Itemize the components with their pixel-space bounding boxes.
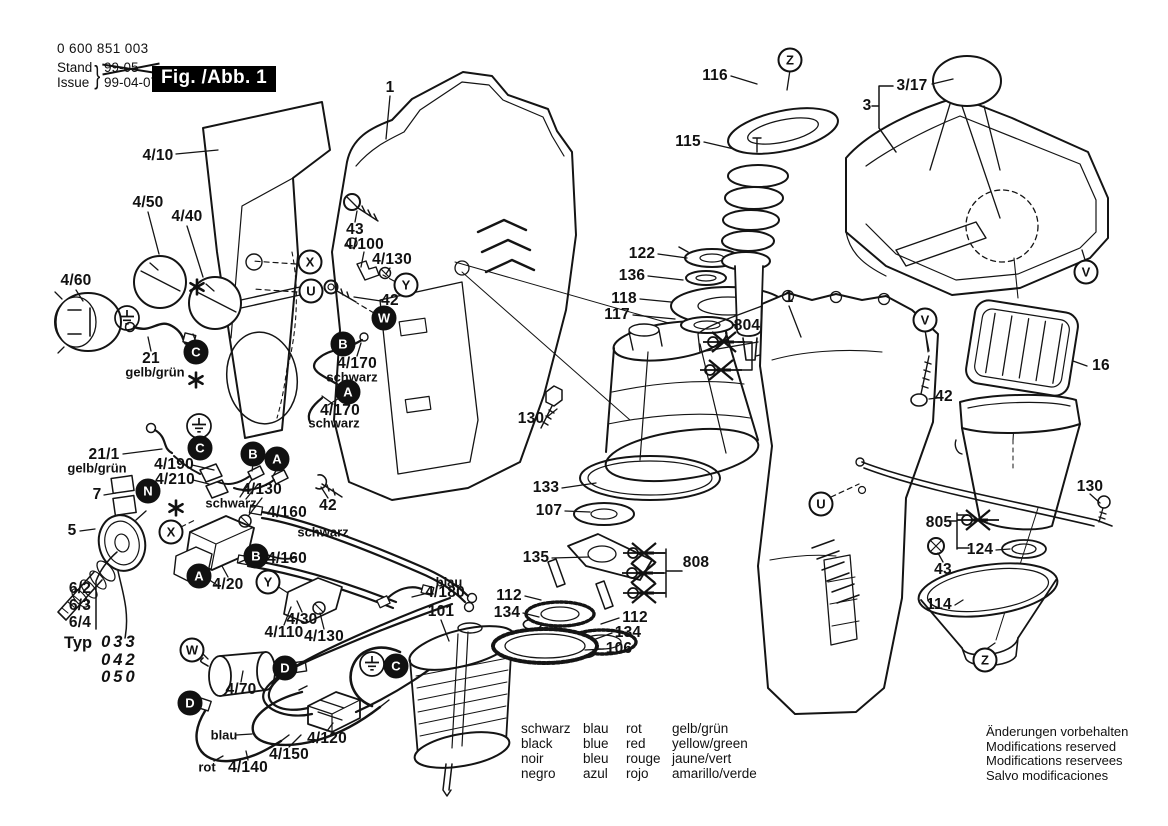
- earth-ground-icon: [114, 305, 141, 332]
- part-number-label: 116: [702, 67, 728, 85]
- color-legend: schwarzblacknoirnegroblaubluebleuazulrot…: [521, 721, 757, 781]
- part-number-label: 122: [629, 245, 655, 263]
- exploded-view-drawing: [0, 0, 1168, 826]
- asterisk-icon: [168, 500, 185, 517]
- part-number-label: 4/110: [265, 624, 304, 642]
- part-number-label: 4/140: [228, 759, 268, 777]
- earth-ground-icon: [359, 651, 386, 678]
- connection-marker-v: V: [1074, 260, 1099, 285]
- type-value: 042: [101, 652, 138, 670]
- legend-term: azul: [583, 766, 626, 781]
- part-number-label: 4/10: [143, 147, 174, 165]
- legend-term: amarillo/verde: [672, 766, 757, 781]
- legend-term: blue: [583, 736, 626, 751]
- brace-glyph: }: [95, 60, 101, 91]
- connection-marker-d: D: [273, 656, 298, 681]
- connection-marker-c: C: [384, 654, 409, 679]
- part-number-label: 6/3: [69, 597, 91, 615]
- part-number-label: 135: [523, 549, 549, 567]
- part-number-label: 136: [619, 267, 645, 285]
- notice-line: Änderungen vorbehalten: [986, 725, 1128, 740]
- connection-marker-x: X: [159, 520, 184, 545]
- part-number-label: 101: [428, 603, 454, 621]
- connection-marker-z: Z: [973, 648, 998, 673]
- connection-marker-v: V: [913, 308, 938, 333]
- legend-term: blau: [583, 721, 626, 736]
- part-number-label: 130: [518, 410, 544, 428]
- part-number-label: 106: [606, 640, 632, 658]
- asterisk-icon: [188, 372, 205, 389]
- connection-marker-u: U: [809, 492, 834, 517]
- not-available-crossed-screw-icon: [699, 358, 743, 382]
- part-number-label: 6/2: [69, 580, 91, 598]
- legend-term: bleu: [583, 751, 626, 766]
- connection-marker-y: Y: [394, 273, 419, 298]
- earth-ground-icon: [186, 413, 213, 440]
- part-number-label: 114: [926, 596, 952, 614]
- connection-marker-b: B: [331, 332, 356, 357]
- part-number-label: 1: [785, 289, 794, 307]
- type-values: 033 042 050: [101, 634, 138, 687]
- connection-marker-d: D: [178, 691, 203, 716]
- connection-marker-w: W: [180, 638, 205, 663]
- legend-term: rojo: [626, 766, 672, 781]
- connection-marker-b: B: [241, 442, 266, 467]
- part-number-label: 4/40: [172, 208, 203, 226]
- connection-marker-n: N: [136, 479, 161, 504]
- part-number-label: 115: [675, 133, 701, 151]
- order-number: 0 600 851 003: [57, 41, 149, 56]
- issue-label: Issue: [57, 76, 92, 91]
- legend-term: yellow/green: [672, 736, 757, 751]
- part-number-label: 4/50: [133, 194, 164, 212]
- part-number-label: 130: [1077, 478, 1103, 496]
- connection-marker-y: Y: [256, 570, 281, 595]
- part-number-label: 4/120: [307, 730, 347, 748]
- wire-color-label: schwarz: [297, 525, 348, 540]
- legend-term: noir: [521, 751, 583, 766]
- notice-line: Modifications reserved: [986, 740, 1128, 755]
- asterisk-icon: [189, 279, 206, 296]
- part-number-label: 4/130: [304, 628, 344, 646]
- connection-marker-a: A: [265, 447, 290, 472]
- legend-term: gelb/grün: [672, 721, 757, 736]
- figure-label: Fig. /Abb. 1: [152, 66, 276, 92]
- type-value: 050: [101, 669, 138, 687]
- legend-term: rot: [626, 721, 672, 736]
- part-number-label: 4/150: [269, 746, 309, 764]
- part-number-label: 16: [1092, 357, 1110, 375]
- connection-marker-b: B: [244, 544, 269, 569]
- part-number-label: 6/4: [69, 614, 91, 632]
- part-number-label: 42: [935, 388, 953, 406]
- legend-column: gelb/grünyellow/greenjaune/vertamarillo/…: [672, 721, 757, 781]
- part-number-label: 133: [533, 479, 559, 497]
- legend-term: negro: [521, 766, 583, 781]
- wire-color-label: rot: [198, 760, 215, 775]
- type-block: Typ 033 042 050: [64, 634, 138, 687]
- connection-marker-u: U: [299, 279, 324, 304]
- connection-marker-a: A: [336, 380, 361, 405]
- connection-marker-z: Z: [778, 48, 803, 73]
- issue-date: 99-04-07: [104, 76, 158, 91]
- part-number-label: 4/130: [242, 481, 282, 499]
- wire-color-label: gelb/grün: [67, 461, 126, 476]
- part-number-label: 4/70: [226, 681, 257, 699]
- part-number-label: 805: [926, 514, 952, 532]
- part-number-label: 4/20: [213, 576, 244, 594]
- part-number-label: 117: [604, 306, 630, 324]
- connection-marker-w: W: [372, 306, 397, 331]
- legend-term: schwarz: [521, 721, 583, 736]
- legend-column: rotredrougerojo: [626, 721, 672, 781]
- part-number-label: 4/130: [372, 251, 412, 269]
- notice-line: Salvo modificaciones: [986, 769, 1128, 784]
- superseded-date: 99-05: [104, 61, 158, 76]
- not-available-crossed-screw-icon: [702, 330, 746, 354]
- connection-marker-c: C: [184, 340, 209, 365]
- connection-marker-a: A: [187, 564, 212, 589]
- wire-color-label: gelb/grün: [125, 365, 184, 380]
- legend-column: blaubluebleuazul: [583, 721, 626, 781]
- legend-term: rouge: [626, 751, 672, 766]
- wire-color-label: schwarz: [308, 416, 359, 431]
- legend-term: black: [521, 736, 583, 751]
- type-value: 033: [101, 634, 138, 652]
- legend-term: red: [626, 736, 672, 751]
- legend-column: schwarzblacknoirnegro: [521, 721, 583, 781]
- part-number-label: 5: [68, 522, 77, 540]
- part-number-label: 7: [93, 486, 102, 504]
- part-number-label: 112: [496, 587, 522, 605]
- notice-line: Modifications reservees: [986, 754, 1128, 769]
- part-number-label: 4/210: [155, 471, 195, 489]
- part-number-label: 43: [934, 561, 952, 579]
- parts-diagram-page: 0 600 851 003 Stand Issue } 99-05 99-04-…: [0, 0, 1168, 826]
- not-available-crossed-screw-icon: [622, 581, 666, 605]
- part-number-label: 4/180: [425, 584, 465, 602]
- part-number-label: 808: [683, 554, 709, 572]
- part-number-label: 134: [494, 604, 520, 622]
- part-number-label: 4/60: [61, 272, 92, 290]
- part-number-label: 4/160: [267, 504, 307, 522]
- part-number-label: 4/160: [267, 550, 307, 568]
- part-number-label: 1: [386, 79, 395, 97]
- part-number-label: 107: [536, 502, 562, 520]
- modification-notices: Änderungen vorbehaltenModifications rese…: [986, 725, 1128, 783]
- part-number-label: 124: [967, 541, 993, 559]
- legend-term: jaune/vert: [672, 751, 757, 766]
- type-label: Typ: [64, 634, 92, 687]
- part-number-label: 42: [319, 497, 337, 515]
- revision-block: Stand Issue } 99-05 99-04-07: [57, 60, 158, 91]
- not-available-crossed-screw-icon: [956, 508, 1000, 532]
- part-number-label: 3/17: [897, 77, 928, 95]
- stand-label: Stand: [57, 61, 92, 76]
- part-number-label: 3: [863, 97, 872, 115]
- connection-marker-x: X: [298, 250, 323, 275]
- wire-color-label: blau: [211, 728, 238, 743]
